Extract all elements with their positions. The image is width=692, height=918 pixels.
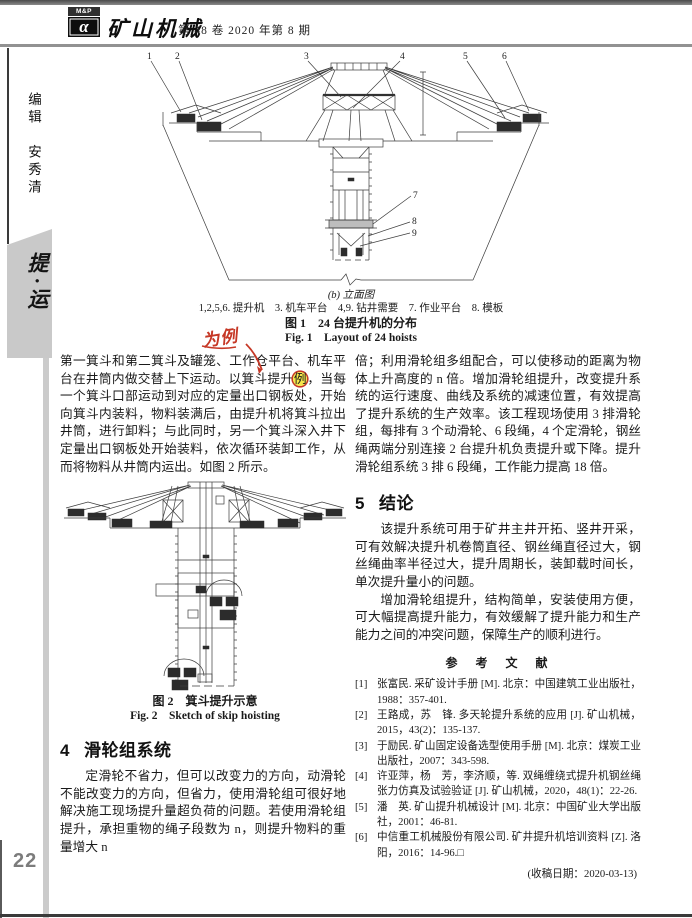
reference-item: [1] 张富民. 采矿设计手册 [M]. 北京：中国建筑工业出版社，1988：3… (355, 677, 641, 708)
fig1-callout-1: 1 (147, 52, 152, 62)
figure-1-drawing: 1 2 3 4 5 6 7 8 9 (101, 50, 601, 290)
figure-1-caption-zh: 图 1 24 台提升机的分布 (101, 316, 601, 331)
section-4-title: 滑轮组系统 (84, 741, 172, 760)
section-5-heading: 5结论 (355, 489, 641, 514)
sidebar-strip (43, 358, 49, 918)
reference-text: 许亚萍，杨 芳，李济顺，等. 双绳缠绕式提升机钢丝绳张力仿真及试验验证 [J].… (377, 769, 641, 800)
reference-item: [3] 于励民. 矿山固定设备选型使用手册 [M]. 北京：煤炭工业出版社，20… (355, 739, 641, 770)
reference-item: [2] 王路成，苏 锋. 多天轮提升系统的应用 [J]. 矿山机械，2015，4… (355, 708, 641, 739)
logo-mp-label: M&P (68, 7, 100, 16)
figure-2-drawing (60, 478, 350, 693)
fig1-callout-4: 4 (400, 52, 405, 62)
section-tab-label: 提·运 (22, 252, 52, 314)
section-4-heading: 4滑轮组系统 (60, 736, 346, 761)
fig1-callout-5: 5 (463, 52, 468, 62)
fig1-callout-7: 7 (413, 191, 418, 201)
page-left-edge (0, 840, 2, 918)
header-divider (0, 44, 692, 47)
conclusion-paragraph-1: 该提升系统可用于矿井主井开拓、竖井开采，可有效解决提升机卷筒直径、钢丝绳直径过大… (355, 521, 641, 591)
issue-info: 第 48 卷 2020 年第 8 期 (178, 22, 311, 38)
paragraph-pulley-system: 倍；利用滑轮组多组配合，可以使移动的距离为物体上升高度的 n 倍。增加滑轮组提升… (355, 353, 641, 476)
page-bottom-rule (0, 914, 692, 917)
section-4-paragraph: 定滑轮不省力，但可以改变力的方向，动滑轮不能改变力的方向，但省力，使用滑轮组可很… (60, 768, 346, 856)
figure-2: 图 2 箕斗提升示意 Fig. 2 Sketch of skip hoistin… (60, 478, 350, 723)
reference-item: [6] 中信重工机械股份有限公司. 矿井提升机培训资料 [Z]. 洛阳，2016… (355, 830, 641, 861)
figure-1-caption-en: Fig. 1 Layout of 24 hoists (101, 331, 601, 345)
section-4-number: 4 (60, 741, 70, 760)
conclusion-paragraph-2: 增加滑轮组提升，结构简单，安装使用方便，可大幅提高提升能力，有效缓解了提升能力和… (355, 592, 641, 645)
reference-text: 潘 英. 矿山提升机械设计 [M]. 北京：中国矿业大学出版社，2001：46-… (377, 800, 641, 831)
reference-number: [5] (355, 800, 377, 831)
journal-logo: M&P α (68, 7, 100, 37)
proof-marked-char: 例 (293, 372, 307, 386)
reference-item: [5] 潘 英. 矿山提升机械设计 [M]. 北京：中国矿业大学出版社，2001… (355, 800, 641, 831)
fig1-callout-6: 6 (502, 52, 507, 62)
section-5-title: 结论 (379, 494, 414, 513)
right-column: 倍；利用滑轮组多组配合，可以使移动的距离为物体上升高度的 n 倍。增加滑轮组提升… (355, 353, 641, 891)
reference-number: [4] (355, 769, 377, 800)
reference-text: 于励民. 矿山固定设备选型使用手册 [M]. 北京：煤炭工业出版社，2007：3… (377, 739, 641, 770)
reference-number: [3] (355, 739, 377, 770)
reference-text: 张富民. 采矿设计手册 [M]. 北京：中国建筑工业出版社，1988：357-4… (377, 677, 641, 708)
sidebar-rule (7, 48, 9, 244)
received-date: (收稿日期：2020-03-13) (355, 866, 641, 881)
figure-2-caption-zh: 图 2 箕斗提升示意 (60, 694, 350, 709)
page-number: 22 (13, 850, 37, 873)
left-column: 第一箕斗和第二箕斗及罐笼、工作仓平台、机车平台在井筒内做交替上下运动。以箕斗提升… (60, 353, 346, 891)
reference-number: [1] (355, 677, 377, 708)
figure-1: 1 2 3 4 5 6 7 8 9 (b) 立面图 1,2,5,6. 提升机 3… (101, 50, 601, 345)
figure-2-caption-en: Fig. 2 Sketch of skip hoisting (60, 709, 350, 723)
references-heading: 参 考 文 献 (355, 654, 641, 671)
text-columns: 第一箕斗和第二箕斗及罐笼、工作仓平台、机车平台在井筒内做交替上下运动。以箕斗提升… (60, 353, 642, 891)
fig1-callout-3: 3 (304, 52, 309, 62)
section-5-number: 5 (355, 494, 365, 513)
editor-credit: 编辑 安秀清 (23, 92, 43, 197)
main-content: 1 2 3 4 5 6 7 8 9 (b) 立面图 1,2,5,6. 提升机 3… (60, 50, 642, 891)
reference-number: [2] (355, 708, 377, 739)
fig1-callout-9: 9 (412, 229, 417, 239)
logo-alpha-icon: α (68, 17, 100, 37)
reference-number: [6] (355, 830, 377, 861)
reference-text: 中信重工机械股份有限公司. 矿井提升机培训资料 [Z]. 洛阳，2016：14-… (377, 830, 641, 861)
fig1-callout-2: 2 (175, 52, 180, 62)
paragraph-text-after: ，当每一个箕斗口部运动到对应的定量出口钢板处，开始向箕斗内装料，物料装满后，由提… (60, 372, 346, 474)
reference-item: [4] 许亚萍，杨 芳，李济顺，等. 双绳缠绕式提升机钢丝绳张力仿真及试验验证 … (355, 769, 641, 800)
figure-1-legend: 1,2,5,6. 提升机 3. 机车平台 4,9. 钻井需要 7. 作业平台 8… (101, 302, 601, 315)
paragraph-skip-operation: 第一箕斗和第二箕斗及罐笼、工作仓平台、机车平台在井筒内做交替上下运动。以箕斗提升… (60, 353, 346, 476)
figure-1-sublabel: (b) 立面图 (101, 290, 601, 302)
fig1-callout-8: 8 (412, 217, 417, 227)
journal-page: M&P α 矿山机械 第 48 卷 2020 年第 8 期 编辑 安秀清 提·运… (0, 0, 692, 918)
top-bar (0, 0, 692, 5)
reference-text: 王路成，苏 锋. 多天轮提升系统的应用 [J]. 矿山机械，2015，43(2)… (377, 708, 641, 739)
